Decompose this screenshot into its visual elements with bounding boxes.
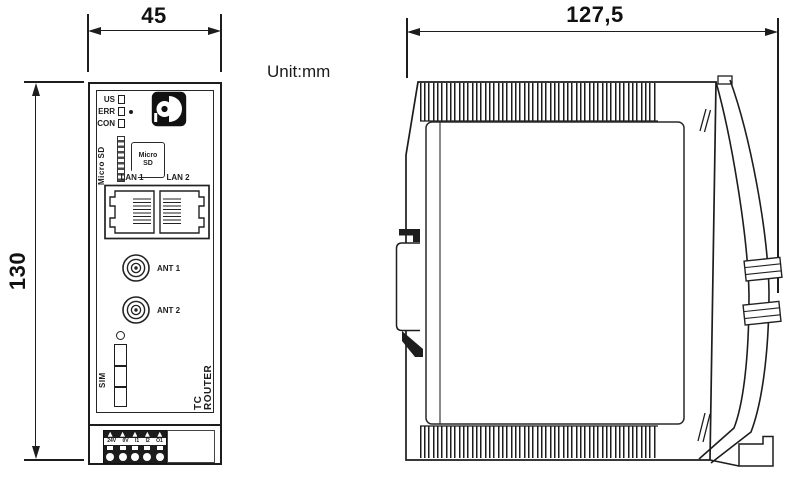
arrowhead-icon (208, 27, 221, 35)
rj45-jack-icon (104, 184, 210, 240)
vent-slats-bottom (420, 426, 658, 458)
coax-antenna-connector-icon (121, 295, 151, 325)
micro-sd-card-text: SD (143, 160, 153, 168)
terminal-label: 24V (107, 439, 116, 444)
lan1-label: LAN 1 (112, 173, 152, 182)
terminal-hole-row (104, 452, 166, 463)
phoenix-contact-logo-icon (151, 91, 187, 127)
ant2-label: ANT 2 (157, 306, 180, 315)
coax-antenna-connector-icon (743, 301, 781, 325)
led-indicator-icon (118, 107, 125, 116)
terminal-clamp-row (104, 431, 166, 438)
led-row-con: CON (92, 118, 125, 129)
terminal-housing-side (739, 437, 773, 467)
screw-terminal-block-icon: 24V 0V I1 I2 O1 (103, 430, 167, 464)
led-indicator-icon (118, 119, 125, 128)
led-indicator-icon (118, 95, 125, 104)
arrowhead-icon (32, 83, 40, 96)
terminal-label: I2 (146, 439, 150, 444)
dimension-line-front-height (31, 83, 40, 459)
ant1-label: ANT 1 (157, 264, 180, 273)
dimension-line-side-depth (407, 27, 778, 36)
section-divider (88, 424, 222, 426)
sim-card-slot-icon (114, 344, 127, 407)
coax-antenna-connector-icon (121, 253, 151, 283)
led-label: CON (92, 120, 115, 128)
product-name-label: TC ROUTER (194, 350, 214, 410)
extension-line (87, 14, 89, 72)
terminal-label: O1 (156, 439, 163, 444)
extension-tick (24, 459, 84, 461)
sim-eject-hole-icon (116, 331, 125, 340)
led-label: US (92, 96, 115, 104)
arrowhead-icon (765, 28, 778, 36)
lan2-label: LAN 2 (158, 173, 198, 182)
terminal-screw-row (104, 445, 166, 452)
micro-sd-card-text: Micro (139, 152, 158, 160)
terminal-section-cover (167, 430, 215, 463)
arrowhead-icon (88, 27, 101, 35)
technical-drawing: 45 127,5 130 Unit:mm US ERR CON (0, 0, 799, 485)
led-row-err: ERR (92, 106, 125, 117)
bezel-top-clip (718, 76, 732, 84)
led-row-us: US (92, 94, 125, 105)
dimension-line-front-width (88, 26, 221, 35)
terminal-label-row: 24V 0V I1 I2 O1 (104, 438, 166, 446)
micro-sd-slot-label: Micro SD (98, 137, 106, 185)
side-view-drawing (393, 60, 793, 475)
extension-line (220, 14, 222, 72)
dim-side-depth-value: 127,5 (540, 2, 650, 28)
arrowhead-icon (407, 28, 420, 36)
sim-label: SIM (99, 362, 107, 388)
vent-slats-top (420, 83, 658, 121)
unit-label: Unit:mm (267, 62, 330, 82)
terminal-label: 0V (122, 439, 128, 444)
led-label: ERR (92, 108, 115, 116)
side-face-panel (426, 122, 684, 424)
coax-antenna-connector-icon (744, 257, 782, 281)
reset-hole-icon (129, 110, 133, 114)
terminal-label: I1 (135, 439, 139, 444)
arrowhead-icon (32, 446, 40, 459)
dim-front-height-value: 130 (5, 236, 31, 306)
